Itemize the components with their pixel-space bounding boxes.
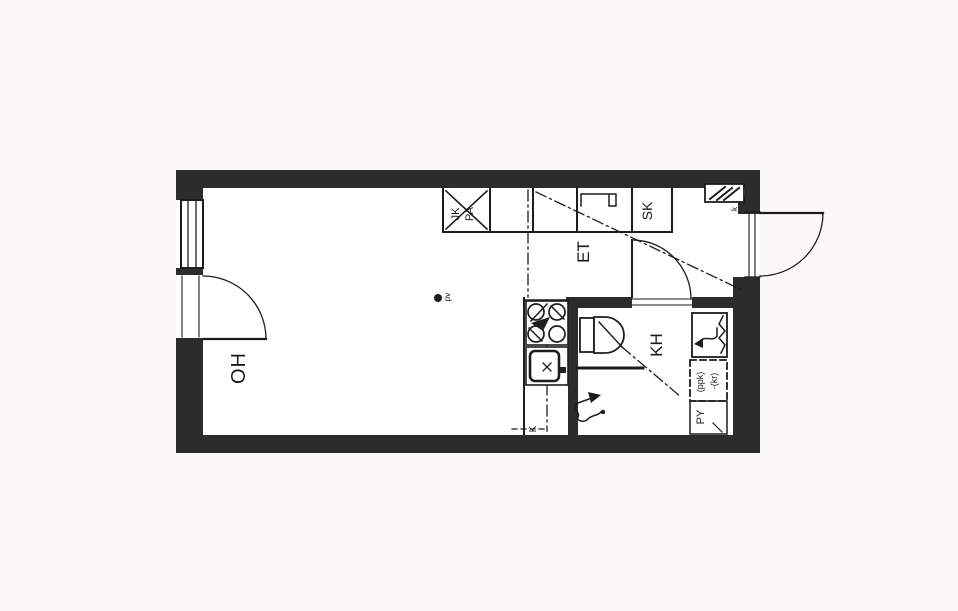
wall-bathroom-top-left [566,297,632,308]
washbasin-symbol [692,313,727,357]
sink-drain-dot [560,367,566,373]
label-cleaning-closet: SK [639,201,655,220]
label-dryer-reservation: -(kr) [709,373,719,390]
entrance-door-swing-arc [760,213,823,276]
scanned-floorplan-page: OH ET KH SK JK PA pv K k (ppk) -(kr) PY [0,0,958,611]
label-kitchenette: K [528,425,539,432]
label-washer-reservation: (ppk) [695,372,705,393]
wall-left-upper [176,188,203,200]
label-freezer: PA [464,206,476,221]
label-pv-point: pv [443,293,452,301]
pv-point-dot [434,294,442,302]
label-laundry-cabinet: PY [695,409,707,424]
wall-left-lower [176,338,203,435]
window-symbol [181,200,203,268]
wall-top [176,170,760,188]
wall-left-between-window-door [176,268,203,275]
label-hallway: ET [574,241,593,263]
stove-symbol [526,301,568,345]
ventilation-shaft [705,184,744,202]
wall-right-lower [733,277,760,435]
toilet-symbol [580,317,624,353]
label-living-room: OH [228,352,250,384]
sink-symbol [526,347,568,385]
wall-bottom [176,435,760,453]
floorplan-drawing: OH ET KH SK JK PA pv K k (ppk) -(kr) PY [0,0,958,611]
label-bathroom: KH [647,333,666,357]
label-fridge: JK [450,207,462,221]
wall-bathroom-top-right [692,297,733,308]
